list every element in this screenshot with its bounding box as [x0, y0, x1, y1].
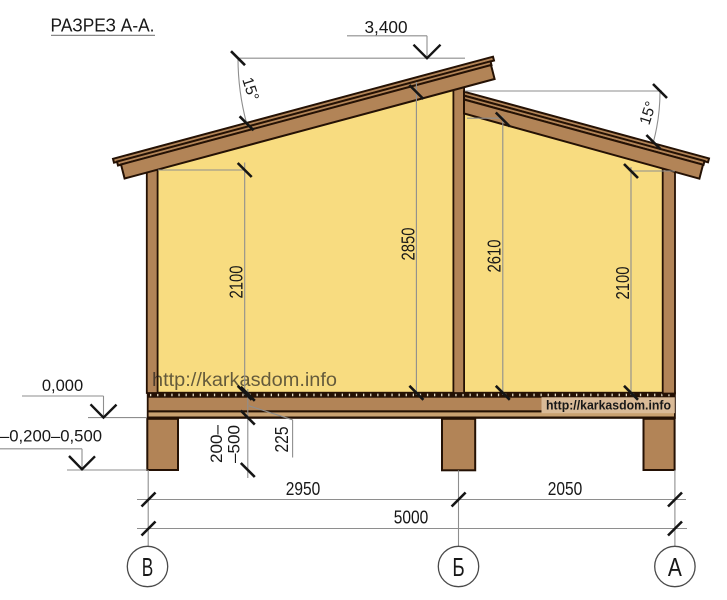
- svg-text:2050: 2050: [548, 479, 583, 499]
- svg-text:3,400: 3,400: [365, 17, 408, 37]
- svg-text:http://karkasdom.info: http://karkasdom.info: [546, 397, 671, 412]
- svg-text:РАЗРЕЗ А-А.: РАЗРЕЗ А-А.: [51, 15, 155, 36]
- svg-text:200–: 200–: [207, 424, 226, 463]
- svg-text:В: В: [142, 552, 154, 582]
- svg-text:–0,200–0,500: –0,200–0,500: [0, 428, 102, 446]
- svg-text:5000: 5000: [394, 508, 429, 528]
- svg-text:225: 225: [271, 427, 292, 453]
- svg-text:2850: 2850: [398, 228, 419, 261]
- svg-text:2100: 2100: [226, 266, 247, 299]
- svg-text:А: А: [668, 552, 683, 582]
- svg-text:2950: 2950: [286, 479, 321, 499]
- svg-text:Б: Б: [452, 552, 464, 582]
- svg-text:2610: 2610: [483, 240, 504, 273]
- svg-text:0,000: 0,000: [42, 377, 83, 395]
- svg-text:–500: –500: [224, 425, 243, 463]
- svg-text:2100: 2100: [612, 267, 633, 300]
